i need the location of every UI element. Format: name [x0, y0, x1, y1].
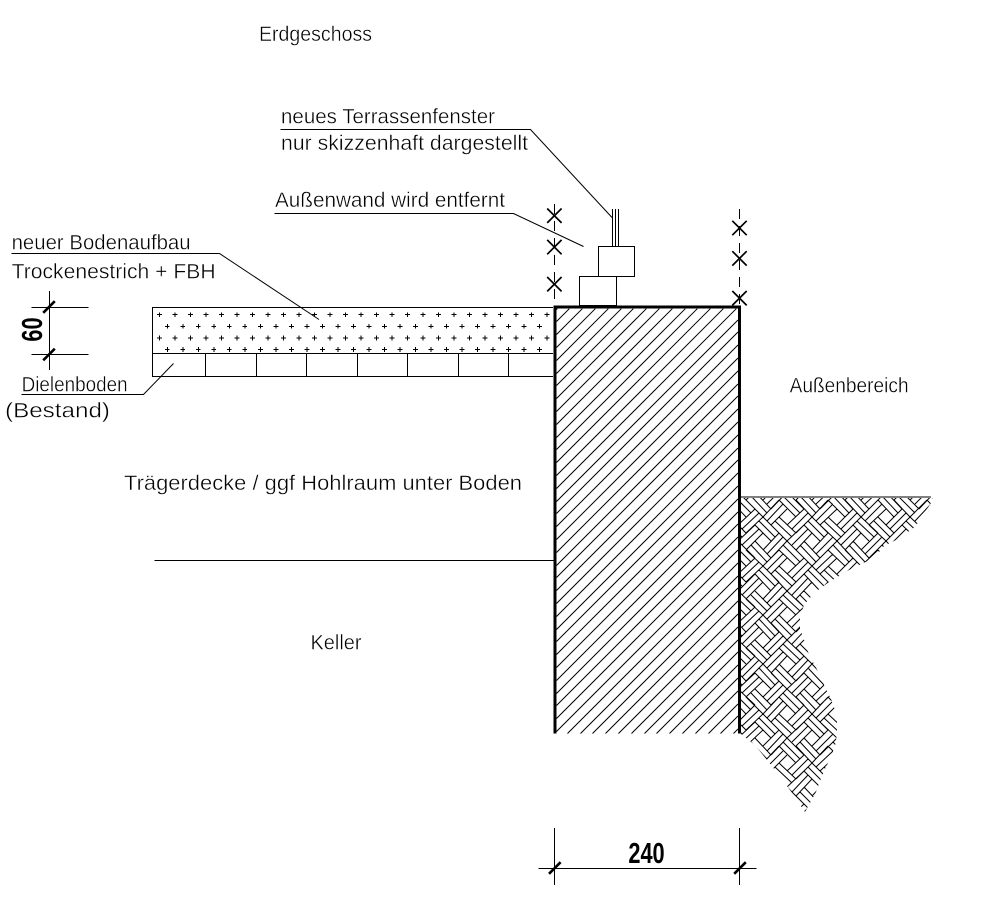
svg-text:(Bestand): (Bestand) — [5, 400, 110, 423]
svg-text:Dielenboden: Dielenboden — [22, 374, 128, 397]
svg-text:240: 240 — [628, 838, 664, 870]
svg-text:60: 60 — [17, 317, 49, 341]
svg-text:neues Terrassenfenster: neues Terrassenfenster — [281, 106, 495, 129]
svg-text:Trägerdecke / ggf Hohlraum unt: Trägerdecke / ggf Hohlraum unter Boden — [124, 472, 522, 495]
svg-text:nur skizzenhaft dargestellt: nur skizzenhaft dargestellt — [281, 132, 528, 155]
svg-text:Keller: Keller — [311, 632, 362, 655]
svg-text:Erdgeschoss: Erdgeschoss — [259, 23, 372, 46]
svg-text:neuer Bodenaufbau: neuer Bodenaufbau — [12, 232, 191, 255]
svg-text:Trockenestrich + FBH: Trockenestrich + FBH — [12, 261, 216, 284]
svg-text:Außenbereich: Außenbereich — [790, 375, 909, 398]
svg-text:Außenwand wird entfernt: Außenwand wird entfernt — [275, 189, 505, 212]
